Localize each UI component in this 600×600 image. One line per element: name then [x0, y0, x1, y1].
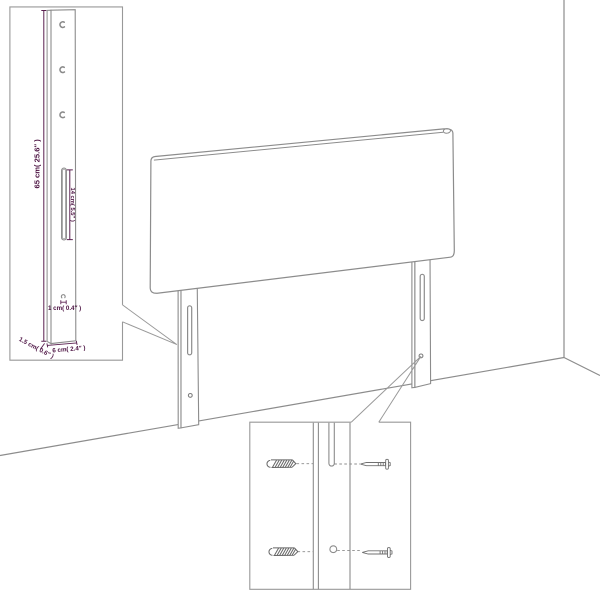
svg-text:14 cm( 5.5″ ): 14 cm( 5.5″ )	[69, 188, 75, 222]
svg-text:65 cm( 25.6″ ): 65 cm( 25.6″ )	[33, 139, 42, 189]
svg-text:1 cm( 0.4″ ): 1 cm( 0.4″ )	[48, 305, 81, 312]
